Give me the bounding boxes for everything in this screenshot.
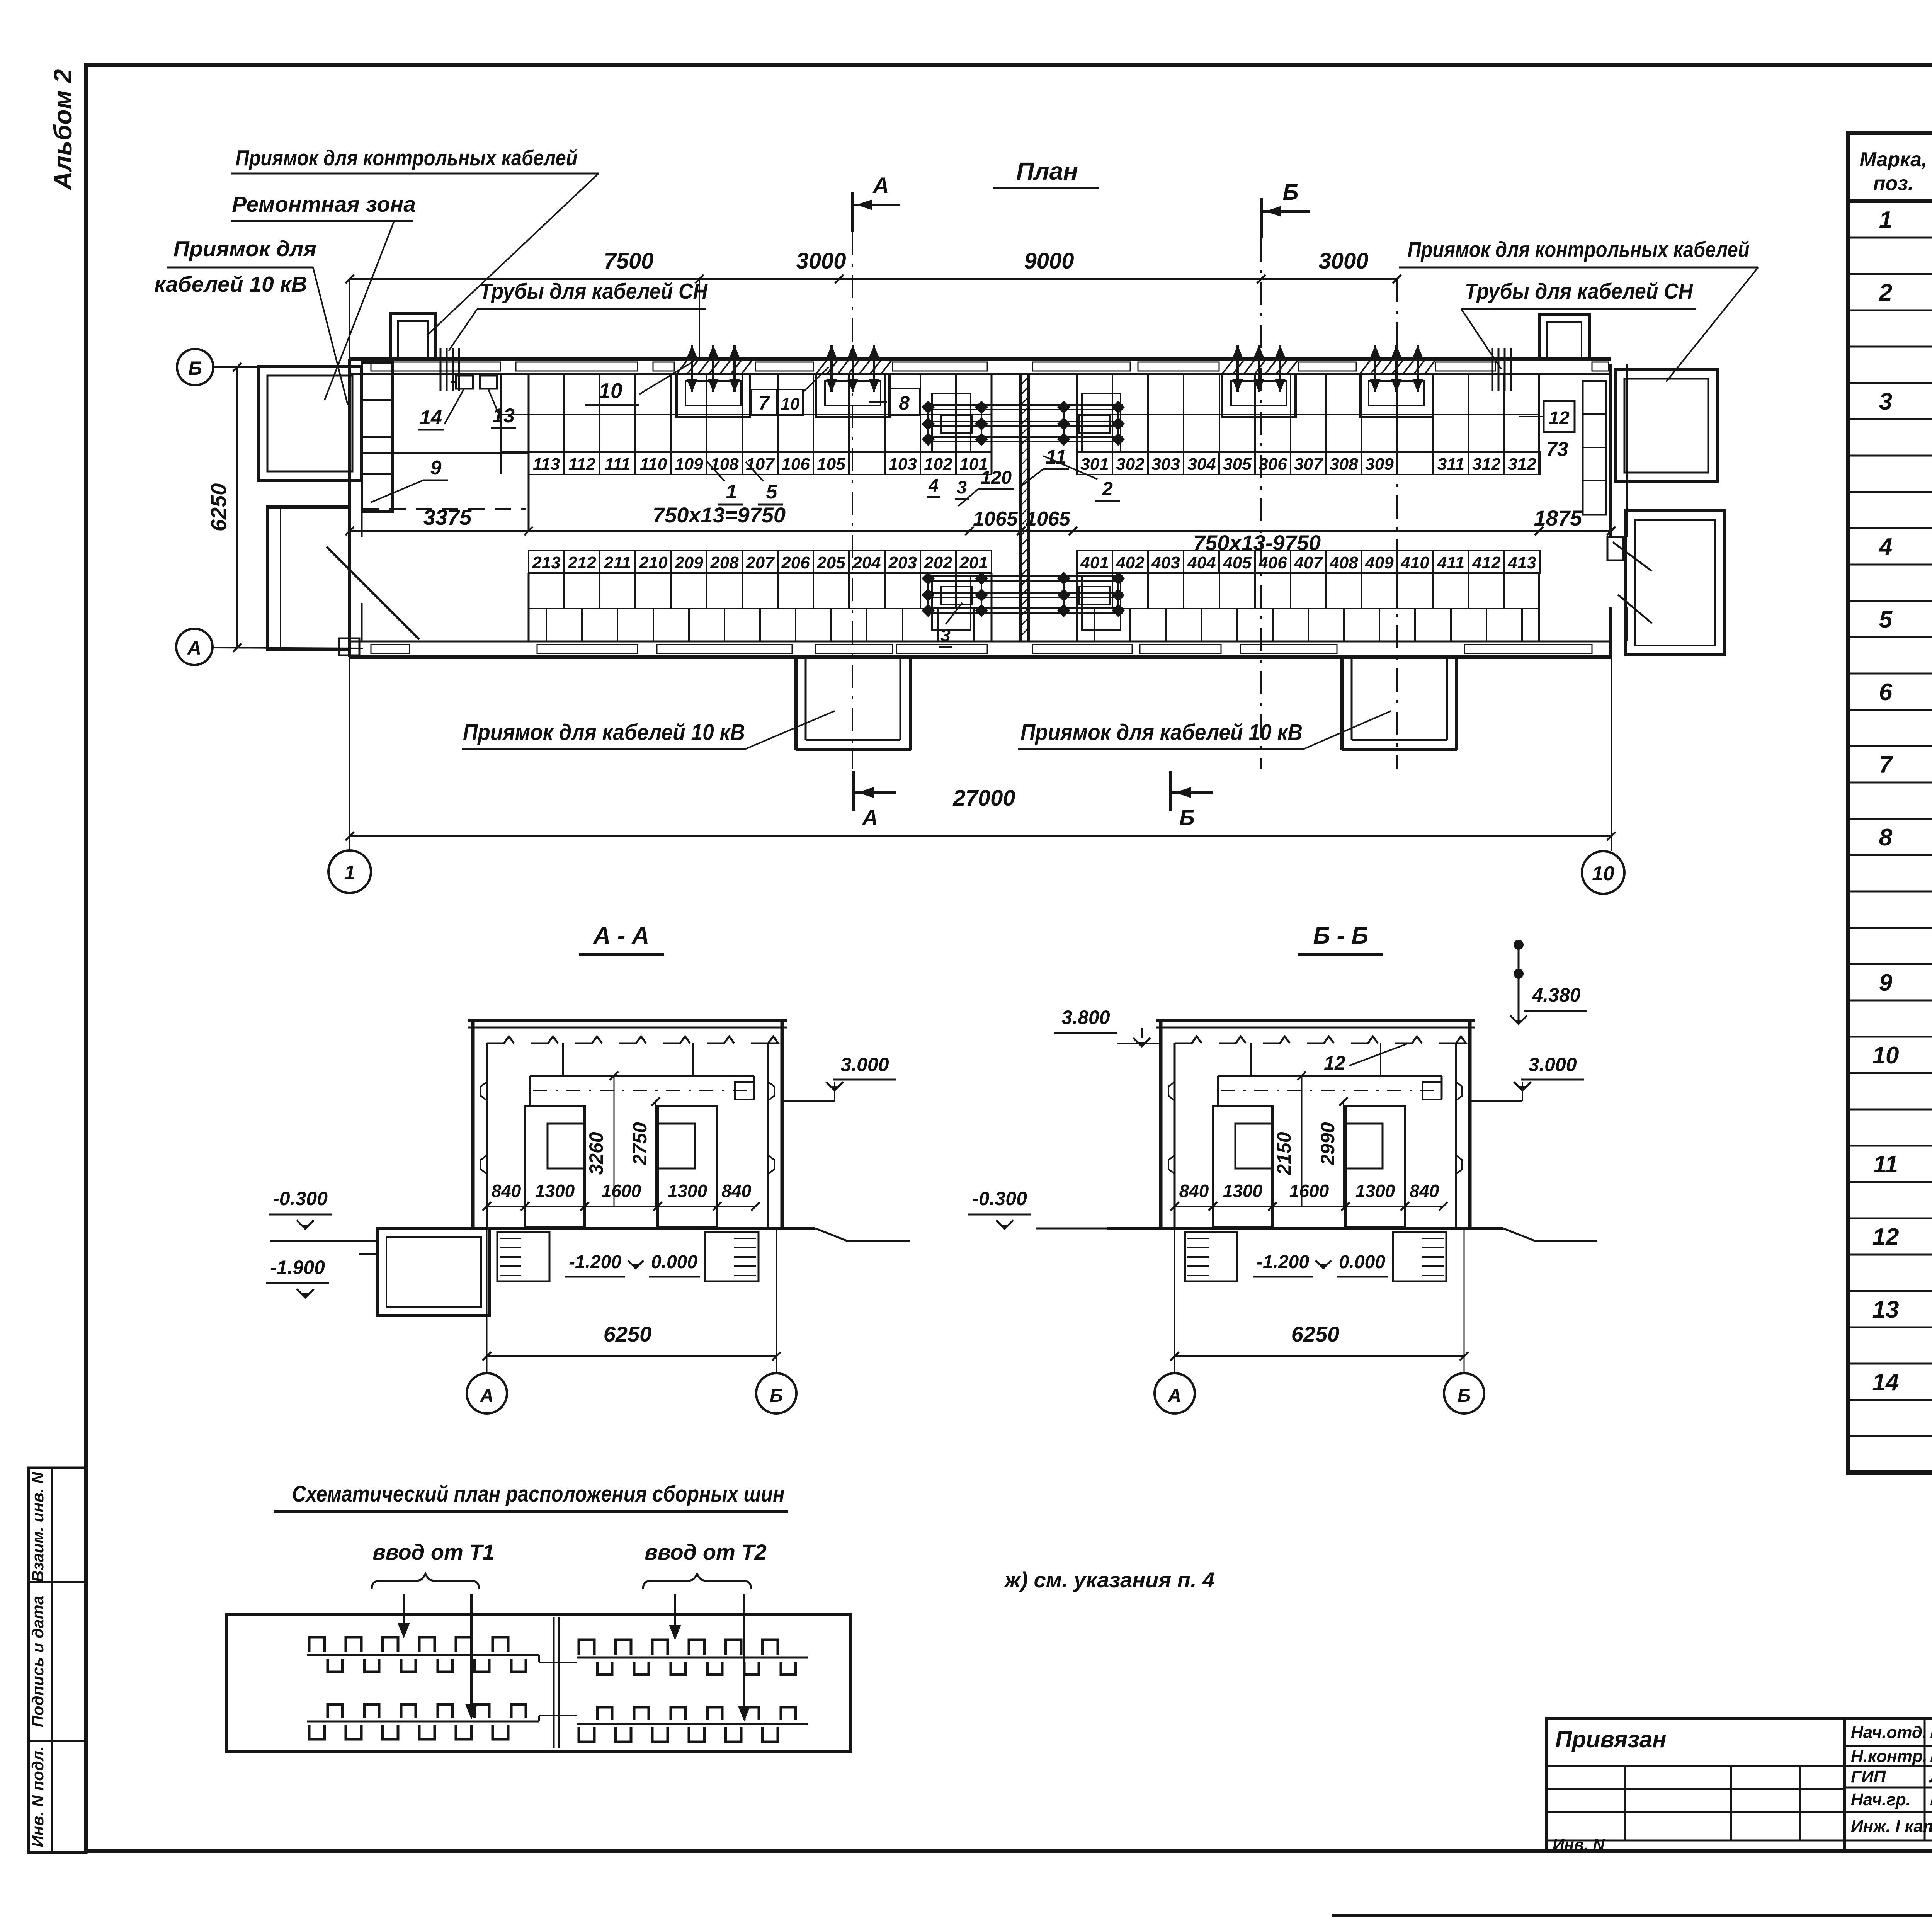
svg-text:11: 11 xyxy=(1873,1151,1898,1178)
svg-text:6250: 6250 xyxy=(604,1322,652,1346)
svg-text:1600: 1600 xyxy=(1289,1181,1329,1201)
svg-text:120: 120 xyxy=(981,468,1012,488)
svg-text:1: 1 xyxy=(344,862,355,884)
svg-text:14: 14 xyxy=(1872,1369,1899,1396)
svg-text:409: 409 xyxy=(1365,553,1394,572)
svg-text:поз.: поз. xyxy=(1873,172,1914,195)
svg-text:-1.200: -1.200 xyxy=(1257,1252,1309,1272)
svg-text:105: 105 xyxy=(817,455,845,474)
svg-text:ввод от Т2: ввод от Т2 xyxy=(645,1540,767,1564)
svg-text:750х13-9750: 750х13-9750 xyxy=(1193,531,1321,555)
svg-text:404: 404 xyxy=(1187,553,1216,572)
svg-text:3: 3 xyxy=(1879,388,1892,415)
svg-text:Трубы для кабелей СН: Трубы для кабелей СН xyxy=(480,279,708,304)
svg-text:2990: 2990 xyxy=(1317,1122,1338,1165)
svg-text:1600: 1600 xyxy=(602,1181,641,1201)
svg-text:-1.200: -1.200 xyxy=(569,1252,621,1272)
svg-text:3375: 3375 xyxy=(423,505,472,529)
svg-text:9000: 9000 xyxy=(1024,248,1074,274)
svg-text:73: 73 xyxy=(1546,438,1568,461)
svg-text:840: 840 xyxy=(492,1181,521,1201)
svg-text:1300: 1300 xyxy=(668,1181,707,1201)
svg-text:10: 10 xyxy=(1872,1042,1899,1069)
svg-text:12: 12 xyxy=(1549,408,1570,429)
svg-text:9: 9 xyxy=(430,457,442,479)
svg-text:Инв. N подл.: Инв. N подл. xyxy=(29,1746,47,1847)
svg-text:5: 5 xyxy=(766,481,778,503)
svg-text:302: 302 xyxy=(1116,455,1145,474)
svg-text:Роменский: Роменский xyxy=(1930,1721,1932,1742)
svg-text:3.800: 3.800 xyxy=(1061,1007,1110,1028)
svg-text:0.000: 0.000 xyxy=(1339,1252,1385,1272)
svg-text:107: 107 xyxy=(746,455,775,474)
svg-text:206: 206 xyxy=(781,553,810,572)
svg-text:2150: 2150 xyxy=(1273,1132,1295,1175)
svg-text:Карпов: Карпов xyxy=(1930,1745,1932,1766)
svg-text:Карпов: Карпов xyxy=(1930,1788,1932,1810)
svg-text:Привязан: Привязан xyxy=(1555,1726,1666,1752)
svg-text:0.000: 0.000 xyxy=(651,1252,697,1272)
svg-text:3000: 3000 xyxy=(1318,248,1368,274)
svg-text:3260: 3260 xyxy=(585,1132,607,1175)
svg-text:12: 12 xyxy=(1324,1052,1345,1074)
svg-text:401: 401 xyxy=(1080,553,1109,572)
svg-text:Приямок для контрольных кабеле: Приямок для контрольных кабелей xyxy=(236,146,578,170)
svg-text:311: 311 xyxy=(1437,455,1464,474)
svg-text:1065: 1065 xyxy=(973,508,1018,530)
svg-text:406: 406 xyxy=(1258,553,1287,572)
svg-text:4.380: 4.380 xyxy=(1532,984,1580,1006)
svg-text:5: 5 xyxy=(1879,606,1893,633)
svg-text:6250: 6250 xyxy=(206,483,231,532)
svg-text:Б: Б xyxy=(188,357,202,379)
svg-text:209: 209 xyxy=(674,553,703,572)
svg-text:13: 13 xyxy=(1872,1296,1899,1323)
svg-text:3000: 3000 xyxy=(796,248,846,274)
svg-text:Н.контр.: Н.контр. xyxy=(1851,1747,1927,1766)
svg-text:10: 10 xyxy=(781,395,800,413)
svg-text:109: 109 xyxy=(675,455,703,474)
svg-text:840: 840 xyxy=(1410,1181,1439,1201)
svg-text:8: 8 xyxy=(1879,824,1893,851)
svg-text:10: 10 xyxy=(599,379,622,403)
svg-text:А: А xyxy=(1168,1386,1182,1406)
svg-text:14: 14 xyxy=(420,406,442,429)
svg-text:А: А xyxy=(480,1386,494,1406)
svg-text:1065: 1065 xyxy=(1026,508,1071,530)
svg-text:Схематический план расположени: Схематический план расположения сборных … xyxy=(292,1481,785,1507)
svg-text:Подпись и дата: Подпись и дата xyxy=(29,1596,47,1727)
svg-text:7500: 7500 xyxy=(604,248,653,274)
svg-text:840: 840 xyxy=(722,1181,752,1201)
svg-text:А: А xyxy=(872,173,889,198)
svg-text:10: 10 xyxy=(1592,862,1614,885)
svg-text:8: 8 xyxy=(899,392,910,414)
svg-text:ж) см. указания п. 4: ж) см. указания п. 4 xyxy=(1003,1568,1214,1592)
svg-text:4: 4 xyxy=(928,475,939,495)
svg-text:Б - Б: Б - Б xyxy=(1313,922,1369,949)
svg-text:Б: Б xyxy=(1282,180,1298,205)
svg-text:212: 212 xyxy=(567,553,596,572)
svg-text:Инв. N: Инв. N xyxy=(1553,1835,1605,1854)
svg-text:402: 402 xyxy=(1116,553,1145,572)
svg-text:Нач.отд.: Нач.отд. xyxy=(1851,1723,1927,1742)
svg-text:2: 2 xyxy=(1102,478,1113,500)
svg-text:308: 308 xyxy=(1330,455,1358,474)
svg-text:1: 1 xyxy=(726,481,737,503)
svg-text:12: 12 xyxy=(1872,1224,1899,1250)
svg-text:Взаим. инв. N: Взаим. инв. N xyxy=(29,1471,47,1582)
svg-text:750х13=9750: 750х13=9750 xyxy=(653,503,786,527)
svg-text:3: 3 xyxy=(940,625,951,645)
svg-text:3.000: 3.000 xyxy=(840,1054,889,1075)
svg-text:6: 6 xyxy=(1879,679,1893,706)
svg-text:305: 305 xyxy=(1223,455,1252,474)
svg-text:411: 411 xyxy=(1437,553,1464,572)
svg-text:1300: 1300 xyxy=(1223,1181,1263,1201)
svg-text:1300: 1300 xyxy=(1355,1181,1395,1201)
svg-text:407: 407 xyxy=(1294,553,1323,572)
svg-text:2: 2 xyxy=(1879,279,1892,306)
svg-text:309: 309 xyxy=(1365,455,1394,474)
svg-text:307: 307 xyxy=(1294,455,1323,474)
svg-text:Нач.гр.: Нач.гр. xyxy=(1851,1790,1911,1809)
svg-text:Б: Б xyxy=(770,1386,783,1406)
svg-text:405: 405 xyxy=(1223,553,1252,572)
svg-text:207: 207 xyxy=(745,553,775,572)
svg-text:План: План xyxy=(1016,157,1078,185)
svg-text:Приямок для контрольных кабеле: Приямок для контрольных кабелей xyxy=(1408,237,1750,262)
svg-text:Ремонтная зона: Ремонтная зона xyxy=(232,192,416,217)
svg-text:202: 202 xyxy=(923,553,952,572)
svg-text:210: 210 xyxy=(639,553,668,572)
svg-text:201: 201 xyxy=(959,553,988,572)
svg-text:303: 303 xyxy=(1151,455,1180,474)
svg-text:Б: Б xyxy=(1179,805,1195,830)
svg-text:7: 7 xyxy=(1879,752,1893,778)
svg-text:306: 306 xyxy=(1259,455,1287,474)
svg-text:211: 211 xyxy=(604,553,631,572)
svg-text:213: 213 xyxy=(532,553,560,572)
svg-text:Приямок для кабелей 10 кВ: Приямок для кабелей 10 кВ xyxy=(463,720,745,745)
svg-text:А: А xyxy=(187,637,201,659)
svg-text:208: 208 xyxy=(710,553,739,572)
svg-text:412: 412 xyxy=(1472,553,1501,572)
svg-text:7: 7 xyxy=(759,392,770,414)
svg-text:1: 1 xyxy=(1879,207,1892,233)
svg-text:кабелей 10 кВ: кабелей 10 кВ xyxy=(154,272,307,297)
svg-text:9: 9 xyxy=(1879,969,1893,996)
svg-text:1875: 1875 xyxy=(1534,506,1582,530)
svg-text:301: 301 xyxy=(1080,455,1109,474)
svg-text:103: 103 xyxy=(888,455,917,474)
svg-text:-0.300: -0.300 xyxy=(972,1188,1027,1209)
svg-text:Трубы для кабелей СН: Трубы для кабелей СН xyxy=(1465,279,1694,304)
svg-text:6250: 6250 xyxy=(1291,1322,1340,1346)
svg-text:102: 102 xyxy=(924,455,952,474)
svg-text:111: 111 xyxy=(605,455,631,474)
svg-text:-0.300: -0.300 xyxy=(273,1188,328,1209)
svg-text:Карпова: Карпова xyxy=(1930,1815,1932,1836)
svg-text:1300: 1300 xyxy=(535,1181,575,1201)
svg-text:410: 410 xyxy=(1400,553,1429,572)
svg-text:312: 312 xyxy=(1472,455,1501,474)
svg-text:А - А: А - А xyxy=(593,922,650,949)
svg-text:Приямок для: Приямок для xyxy=(173,236,316,261)
svg-text:113: 113 xyxy=(533,455,560,474)
svg-text:112: 112 xyxy=(568,455,596,474)
svg-text:А: А xyxy=(862,805,878,830)
svg-text:Инж. I кат: Инж. I кат xyxy=(1851,1817,1932,1836)
svg-text:Марка,: Марка, xyxy=(1860,148,1927,171)
svg-text:3.000: 3.000 xyxy=(1528,1054,1577,1075)
svg-text:Б: Б xyxy=(1458,1386,1471,1406)
svg-text:840: 840 xyxy=(1179,1181,1209,1201)
svg-text:203: 203 xyxy=(888,553,917,572)
svg-text:304: 304 xyxy=(1187,455,1216,474)
svg-text:Альбом 2: Альбом 2 xyxy=(48,69,77,190)
svg-text:ввод от Т1: ввод от Т1 xyxy=(372,1540,495,1564)
svg-text:204: 204 xyxy=(852,553,881,572)
svg-text:4: 4 xyxy=(1878,534,1892,560)
svg-text:205: 205 xyxy=(816,553,845,572)
svg-text:106: 106 xyxy=(781,455,810,474)
svg-text:312: 312 xyxy=(1508,455,1536,474)
svg-text:413: 413 xyxy=(1507,553,1536,572)
svg-text:-1.900: -1.900 xyxy=(270,1257,325,1278)
svg-text:ГИП: ГИП xyxy=(1851,1767,1886,1786)
svg-text:Приямок для кабелей 10 кВ: Приямок для кабелей 10 кВ xyxy=(1020,720,1303,745)
svg-text:27000: 27000 xyxy=(952,786,1015,811)
svg-text:408: 408 xyxy=(1329,553,1358,572)
svg-text:2750: 2750 xyxy=(629,1122,651,1165)
svg-text:110: 110 xyxy=(640,455,667,474)
svg-text:3: 3 xyxy=(957,477,967,497)
svg-text:403: 403 xyxy=(1151,553,1180,572)
